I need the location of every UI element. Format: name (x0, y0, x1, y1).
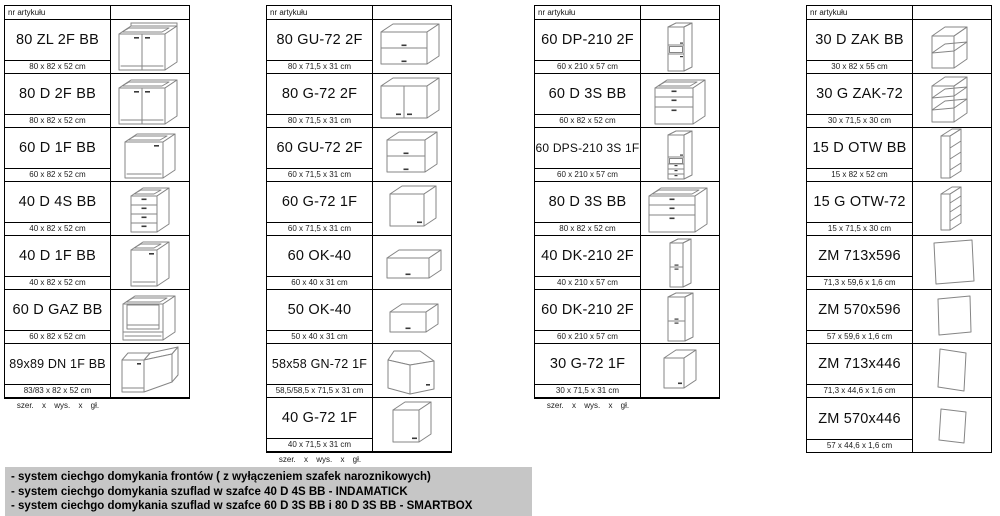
wall-1f-60-icon (373, 182, 451, 235)
table-row: 40 D 4S BB40 x 82 x 52 cm (5, 182, 189, 236)
table-row: 60 GU-72 2F60 x 71,5 x 31 cm (267, 128, 451, 182)
zak-g-icon (913, 74, 991, 127)
wall-1f-40-icon (373, 398, 451, 451)
table-header-spacer (373, 6, 451, 19)
product-code: 60 D 3S BB (535, 74, 640, 114)
product-code: 60 GU-72 2F (267, 128, 372, 168)
table-row: 60 OK-4060 x 40 x 31 cm (267, 236, 451, 290)
product-dimensions: 30 x 71,5 x 30 cm (807, 114, 912, 127)
product-dimensions: 60 x 82 x 52 cm (535, 114, 640, 127)
product-code: ZM 570x446 (807, 398, 912, 439)
table-row: 40 DK-210 2F40 x 210 x 57 cm (535, 236, 719, 290)
table-row: ZM 713x44671,3 x 44,6 x 1,6 cm (807, 344, 991, 398)
product-cell: 40 D 4S BB40 x 82 x 52 cm (5, 182, 111, 235)
table-header-spacer (913, 6, 991, 19)
product-cell: ZM 713x59671,3 x 59,6 x 1,6 cm (807, 236, 913, 289)
base-corner-icon (111, 344, 189, 397)
table-row: 58x58 GN-72 1F58,5/58,5 x 71,5 x 31 cm (267, 344, 451, 398)
table-header-spacer (641, 6, 719, 19)
product-code: ZM 570x596 (807, 290, 912, 330)
table-row: 60 D 3S BB60 x 82 x 52 cm (535, 74, 719, 128)
catalog-page: nr artykułu80 ZL 2F BB80 x 82 x 52 cm80 … (0, 0, 1000, 516)
zak-d-icon (913, 20, 991, 73)
product-dimensions: 58,5/58,5 x 71,5 x 31 cm (267, 384, 372, 397)
base-3s-60-icon (641, 74, 719, 127)
product-dimensions: 15 x 71,5 x 30 cm (807, 222, 912, 235)
table-header-label: nr artykułu (5, 6, 111, 19)
product-dimensions: 80 x 82 x 52 cm (535, 222, 640, 235)
product-dimensions: 40 x 82 x 52 cm (5, 276, 110, 289)
product-cell: 30 G ZAK-7230 x 71,5 x 30 cm (807, 74, 913, 127)
product-code: 80 GU-72 2F (267, 20, 372, 60)
product-cell: 60 D GAZ BB60 x 82 x 52 cm (5, 290, 111, 343)
note-line: - system ciechgo domykania frontów ( z w… (11, 470, 526, 485)
product-cell: 58x58 GN-72 1F58,5/58,5 x 71,5 x 31 cm (267, 344, 373, 397)
product-code: 60 OK-40 (267, 236, 372, 276)
product-code: 15 D OTW BB (807, 128, 912, 168)
table-row: 60 G-72 1F60 x 71,5 x 31 cm (267, 182, 451, 236)
product-code: 60 G-72 1F (267, 182, 372, 222)
base-3s-80-icon (641, 182, 719, 235)
product-cell: 30 G-72 1F30 x 71,5 x 31 cm (535, 344, 641, 397)
product-cell: 89x89 DN 1F BB83/83 x 82 x 52 cm (5, 344, 111, 397)
table-row: 80 ZL 2F BB80 x 82 x 52 cm (5, 20, 189, 74)
product-cell: 80 ZL 2F BB80 x 82 x 52 cm (5, 20, 111, 73)
product-dimensions: 71,3 x 44,6 x 1,6 cm (807, 384, 912, 397)
wall-corner-icon (373, 344, 451, 397)
product-cell: 40 D 1F BB40 x 82 x 52 cm (5, 236, 111, 289)
tall-dk-60-icon (641, 290, 719, 343)
product-cell: ZM 713x44671,3 x 44,6 x 1,6 cm (807, 344, 913, 397)
product-dimensions: 15 x 82 x 52 cm (807, 168, 912, 181)
product-code: ZM 713x596 (807, 236, 912, 276)
product-cell: 80 G-72 2F80 x 71,5 x 31 cm (267, 74, 373, 127)
table-header-row: nr artykułu (535, 6, 719, 20)
base-1f-40-icon (111, 236, 189, 289)
tall-dp-icon (641, 20, 719, 73)
product-dimensions: 40 x 82 x 52 cm (5, 222, 110, 235)
product-cell: 80 D 2F BB80 x 82 x 52 cm (5, 74, 111, 127)
product-cell: 40 G-72 1F40 x 71,5 x 31 cm (267, 398, 373, 451)
product-code: 50 OK-40 (267, 290, 372, 330)
table-row: 89x89 DN 1F BB83/83 x 82 x 52 cm (5, 344, 189, 398)
product-code: 60 D 1F BB (5, 128, 110, 168)
table-row: 60 DP-210 2F60 x 210 x 57 cm (535, 20, 719, 74)
panel-570x446-icon (913, 398, 991, 452)
table-row: ZM 713x59671,3 x 59,6 x 1,6 cm (807, 236, 991, 290)
product-code: 15 G OTW-72 (807, 182, 912, 222)
product-dimensions: 60 x 82 x 52 cm (5, 168, 110, 181)
table-row: 60 DK-210 2F60 x 210 x 57 cm (535, 290, 719, 344)
base-1f-60-icon (111, 128, 189, 181)
product-cell: 80 GU-72 2F80 x 71,5 x 31 cm (267, 20, 373, 73)
table-row: 60 D GAZ BB60 x 82 x 52 cm (5, 290, 189, 344)
notes-block: - system ciechgo domykania frontów ( z w… (5, 467, 532, 516)
wall-2f-80-icon (373, 74, 451, 127)
table-header-row: nr artykułu (807, 6, 991, 20)
product-code: 40 DK-210 2F (535, 236, 640, 276)
table-header-row: nr artykułu (267, 6, 451, 20)
wall-1f-30-icon (641, 344, 719, 397)
table-row: 60 DPS-210 3S 1F60 x 210 x 57 cm (535, 128, 719, 182)
tall-dk-40-icon (641, 236, 719, 289)
table-row: ZM 570x59657 x 59,6 x 1,6 cm (807, 290, 991, 344)
product-cell: 60 D 3S BB60 x 82 x 52 cm (535, 74, 641, 127)
product-code: 80 G-72 2F (267, 74, 372, 114)
product-dimensions: 60 x 210 x 57 cm (535, 330, 640, 343)
wall-ok-50-icon (373, 290, 451, 343)
table-row: 40 G-72 1F40 x 71,5 x 31 cm (267, 398, 451, 452)
product-dimensions: 30 x 82 x 55 cm (807, 60, 912, 73)
product-cell: 60 DK-210 2F60 x 210 x 57 cm (535, 290, 641, 343)
otw-d-icon (913, 128, 991, 181)
product-code: 30 D ZAK BB (807, 20, 912, 60)
table-row: 30 D ZAK BB30 x 82 x 55 cm (807, 20, 991, 74)
table-row: 30 G ZAK-7230 x 71,5 x 30 cm (807, 74, 991, 128)
product-cell: ZM 570x59657 x 59,6 x 1,6 cm (807, 290, 913, 343)
product-cell: 30 D ZAK BB30 x 82 x 55 cm (807, 20, 913, 73)
product-code: 30 G-72 1F (535, 344, 640, 384)
product-dimensions: 60 x 210 x 57 cm (535, 60, 640, 73)
product-code: 40 D 4S BB (5, 182, 110, 222)
table-header-label: nr artykułu (807, 6, 913, 19)
table-footer-legend: szer. x wys. x gł. (535, 401, 641, 410)
table-header-row: nr artykułu (5, 6, 189, 20)
product-dimensions: 40 x 71,5 x 31 cm (267, 438, 372, 451)
product-dimensions: 57 x 44,6 x 1,6 cm (807, 439, 912, 452)
product-dimensions: 80 x 82 x 52 cm (5, 60, 110, 73)
product-code: 30 G ZAK-72 (807, 74, 912, 114)
product-dimensions: 83/83 x 82 x 52 cm (5, 384, 110, 397)
product-cell: 60 GU-72 2F60 x 71,5 x 31 cm (267, 128, 373, 181)
product-cell: 60 OK-4060 x 40 x 31 cm (267, 236, 373, 289)
wall-gu-60-icon (373, 128, 451, 181)
product-code: 80 D 2F BB (5, 74, 110, 114)
product-cell: ZM 570x44657 x 44,6 x 1,6 cm (807, 398, 913, 452)
product-dimensions: 80 x 71,5 x 31 cm (267, 114, 372, 127)
otw-g-icon (913, 182, 991, 235)
table-row: 40 D 1F BB40 x 82 x 52 cm (5, 236, 189, 290)
product-dimensions: 30 x 71,5 x 31 cm (535, 384, 640, 397)
base-gaz-icon (111, 290, 189, 343)
product-cell: 60 G-72 1F60 x 71,5 x 31 cm (267, 182, 373, 235)
product-dimensions: 60 x 40 x 31 cm (267, 276, 372, 289)
product-dimensions: 60 x 210 x 57 cm (535, 168, 640, 181)
table-footer-legend: szer. x wys. x gł. (5, 401, 111, 410)
table-row: 60 D 1F BB60 x 82 x 52 cm (5, 128, 189, 182)
table-row: 80 D 2F BB80 x 82 x 52 cm (5, 74, 189, 128)
base-2f-icon (111, 74, 189, 127)
note-line: - system ciechgo domykania szuflad w sza… (11, 499, 526, 514)
product-dimensions: 57 x 59,6 x 1,6 cm (807, 330, 912, 343)
table-header-label: nr artykułu (535, 6, 641, 19)
product-dimensions: 71,3 x 59,6 x 1,6 cm (807, 276, 912, 289)
product-code: 40 G-72 1F (267, 398, 372, 438)
table-footer-legend: szer. x wys. x gł. (267, 455, 373, 464)
panel-713x596-icon (913, 236, 991, 289)
table-row: 80 G-72 2F80 x 71,5 x 31 cm (267, 74, 451, 128)
table-row: 80 D 3S BB80 x 82 x 52 cm (535, 182, 719, 236)
product-dimensions: 80 x 71,5 x 31 cm (267, 60, 372, 73)
base-sink-2f-icon (111, 20, 189, 73)
table-row: ZM 570x44657 x 44,6 x 1,6 cm (807, 398, 991, 452)
product-dimensions: 50 x 40 x 31 cm (267, 330, 372, 343)
panel-570x596-icon (913, 290, 991, 343)
panel-713x446-icon (913, 344, 991, 397)
product-cell: 15 D OTW BB15 x 82 x 52 cm (807, 128, 913, 181)
product-dimensions: 60 x 71,5 x 31 cm (267, 222, 372, 235)
table-row: 30 G-72 1F30 x 71,5 x 31 cm (535, 344, 719, 398)
product-cell: 80 D 3S BB80 x 82 x 52 cm (535, 182, 641, 235)
product-cell: 40 DK-210 2F40 x 210 x 57 cm (535, 236, 641, 289)
product-cell: 60 DP-210 2F60 x 210 x 57 cm (535, 20, 641, 73)
base-4s-icon (111, 182, 189, 235)
cabinet-table-3: nr artykułu60 DP-210 2F60 x 210 x 57 cm6… (534, 5, 720, 399)
product-dimensions: 80 x 82 x 52 cm (5, 114, 110, 127)
product-dimensions: 60 x 82 x 52 cm (5, 330, 110, 343)
cabinet-table-1: nr artykułu80 ZL 2F BB80 x 82 x 52 cm80 … (4, 5, 190, 399)
product-code: 58x58 GN-72 1F (267, 344, 372, 384)
product-cell: 60 DPS-210 3S 1F60 x 210 x 57 cm (535, 128, 641, 181)
product-code: 89x89 DN 1F BB (5, 344, 110, 384)
note-line: - system ciechgo domykania szuflad w sza… (11, 485, 526, 500)
product-code: ZM 713x446 (807, 344, 912, 384)
product-code: 60 DK-210 2F (535, 290, 640, 330)
tall-dps-icon (641, 128, 719, 181)
product-cell: 60 D 1F BB60 x 82 x 52 cm (5, 128, 111, 181)
cabinet-table-4: nr artykułu30 D ZAK BB30 x 82 x 55 cm30 … (806, 5, 992, 453)
table-header-label: nr artykułu (267, 6, 373, 19)
product-cell: 50 OK-4050 x 40 x 31 cm (267, 290, 373, 343)
cabinet-table-2: nr artykułu80 GU-72 2F80 x 71,5 x 31 cm8… (266, 5, 452, 453)
product-code: 60 D GAZ BB (5, 290, 110, 330)
product-cell: 15 G OTW-7215 x 71,5 x 30 cm (807, 182, 913, 235)
product-code: 40 D 1F BB (5, 236, 110, 276)
wall-ok-60-icon (373, 236, 451, 289)
product-dimensions: 40 x 210 x 57 cm (535, 276, 640, 289)
product-code: 60 DPS-210 3S 1F (535, 128, 640, 168)
product-code: 80 ZL 2F BB (5, 20, 110, 60)
product-dimensions: 60 x 71,5 x 31 cm (267, 168, 372, 181)
table-row: 50 OK-4050 x 40 x 31 cm (267, 290, 451, 344)
product-code: 80 D 3S BB (535, 182, 640, 222)
table-header-spacer (111, 6, 189, 19)
table-row: 15 G OTW-7215 x 71,5 x 30 cm (807, 182, 991, 236)
table-row: 80 GU-72 2F80 x 71,5 x 31 cm (267, 20, 451, 74)
wall-gu-80-icon (373, 20, 451, 73)
table-row: 15 D OTW BB15 x 82 x 52 cm (807, 128, 991, 182)
product-code: 60 DP-210 2F (535, 20, 640, 60)
